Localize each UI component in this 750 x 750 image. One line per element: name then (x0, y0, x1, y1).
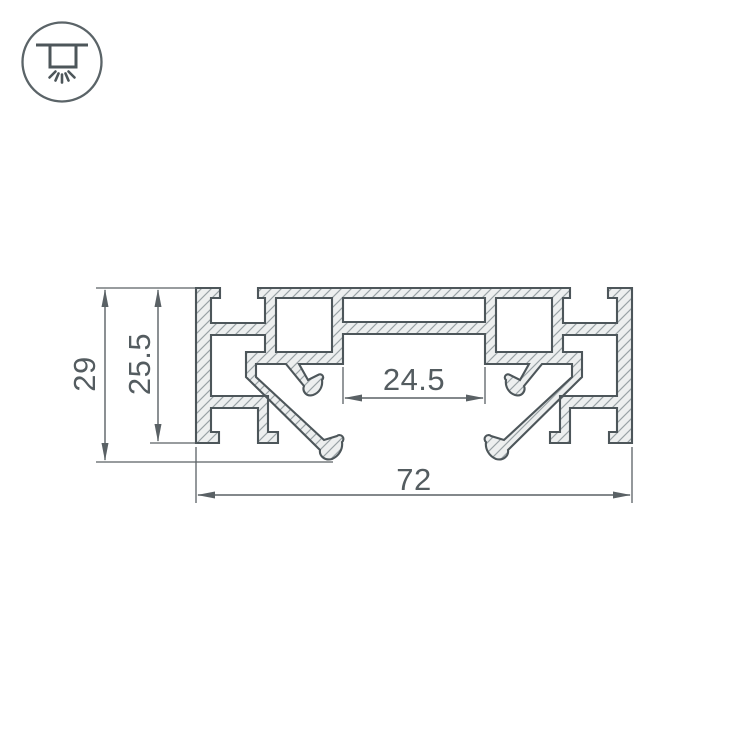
ceiling-light-badge (23, 23, 102, 102)
label-overall-height: 29 (67, 356, 102, 391)
badge-circle (23, 23, 102, 102)
label-channel-width: 24.5 (383, 362, 445, 397)
page-background (0, 0, 750, 750)
profile-drawing-svg: 29 25.5 24.5 72 (0, 0, 750, 750)
label-body-height: 25.5 (122, 333, 157, 395)
label-overall-width: 72 (396, 462, 431, 497)
drawing-canvas: 29 25.5 24.5 72 (0, 0, 750, 750)
